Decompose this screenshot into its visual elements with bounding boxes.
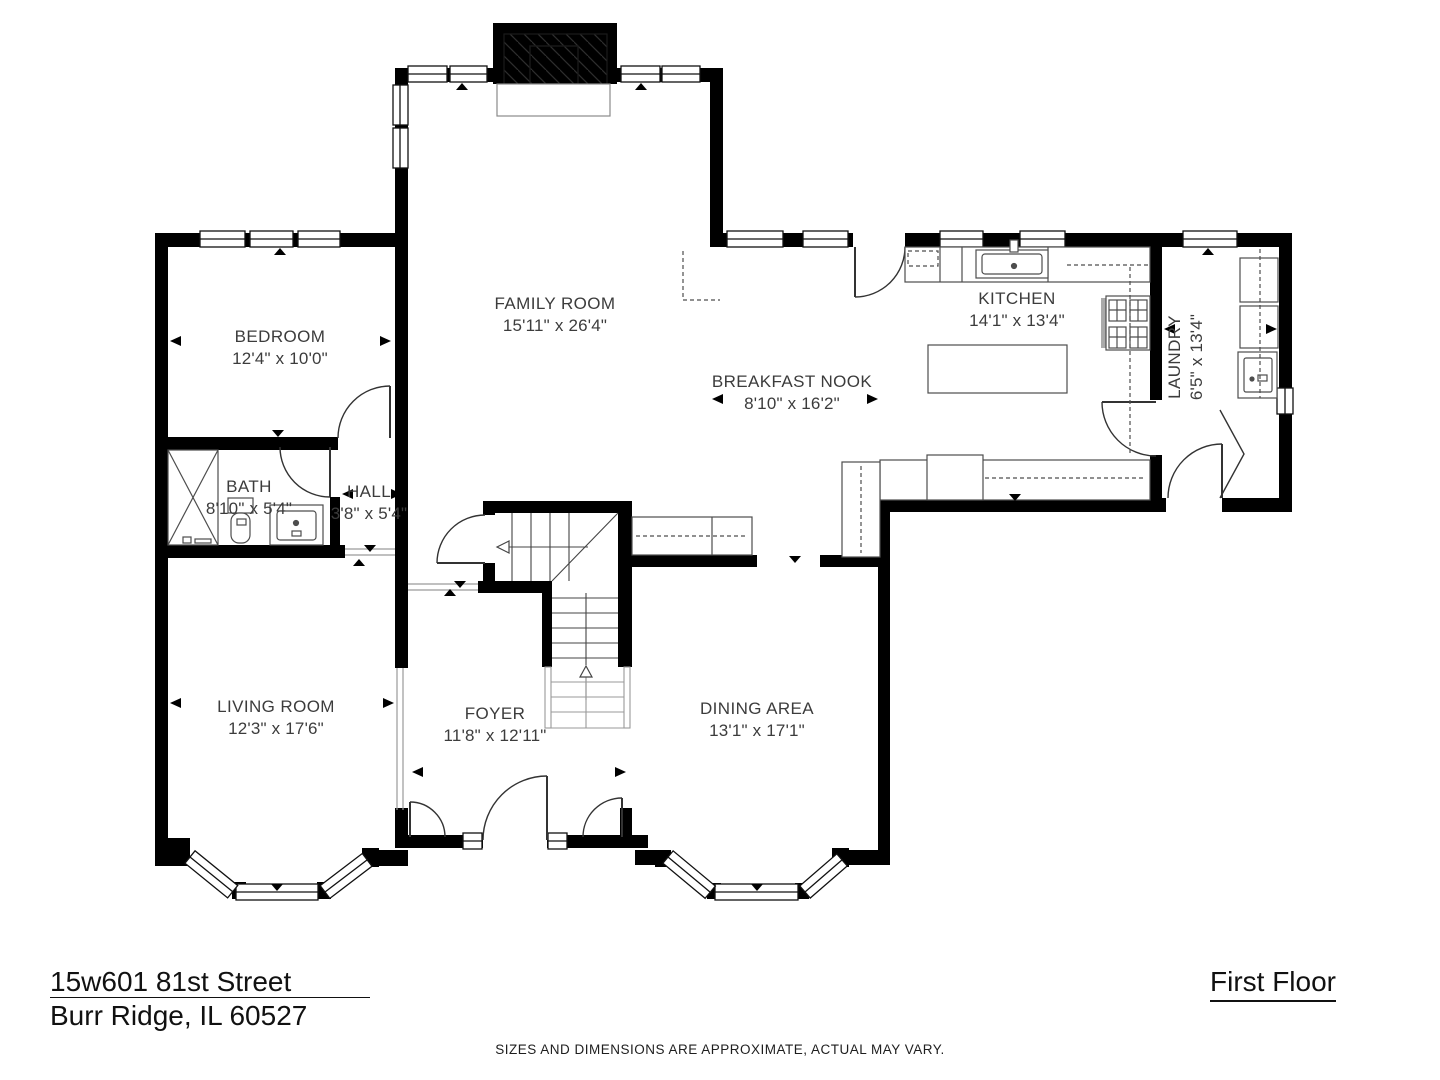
room-label-bedroom: BEDROOM12'4" x 10'0"	[232, 326, 328, 370]
washer	[1240, 258, 1278, 302]
stove	[1101, 296, 1150, 350]
room-dimensions: 8'10" x 5'4"	[206, 498, 292, 520]
floor-plan-page: FAMILY ROOM15'11" x 26'4"BREAKFAST NOOK8…	[0, 0, 1440, 1080]
room-label-hall: HALL3'8" x 5'4"	[331, 481, 408, 525]
foyer-right-closet-door	[583, 798, 622, 837]
bedroom-door	[338, 386, 390, 438]
kitchen-back-door	[855, 247, 905, 297]
room-dimensions: 8'10" x 16'2"	[712, 393, 872, 415]
living-room-bay-windows	[185, 851, 372, 900]
passage-thresholds	[345, 549, 478, 810]
room-dimensions: 15'11" x 26'4"	[495, 315, 616, 337]
staircase	[497, 513, 630, 728]
room-dimensions: 14'1" x 13'4"	[969, 310, 1065, 332]
address-underline	[50, 997, 370, 998]
floor-title: First Floor	[1210, 966, 1336, 1002]
wall-openings	[338, 232, 1222, 849]
fireplace	[497, 34, 610, 116]
room-label-bath: BATH8'10" x 5'4"	[206, 476, 292, 520]
room-name: KITCHEN	[969, 288, 1065, 310]
room-label-foyer: FOYER11'8" x 12'11"	[444, 703, 547, 747]
kitchen-laundry-door	[1102, 402, 1156, 456]
dining-bay-windows	[663, 851, 847, 900]
room-label-dining-area: DINING AREA13'1" x 17'1"	[700, 698, 814, 742]
kitchen-island	[928, 345, 1067, 393]
laundry-sink	[1238, 352, 1277, 398]
room-name: FAMILY ROOM	[495, 293, 616, 315]
room-dimensions: 3'8" x 5'4"	[331, 503, 408, 525]
room-label-kitchen: KITCHEN14'1" x 13'4"	[969, 288, 1065, 332]
doors	[280, 247, 1244, 840]
room-dimensions: 6'5" x 13'4"	[1186, 314, 1208, 400]
laundry-fixtures	[1238, 249, 1278, 398]
address-block: 15w601 81st Street	[50, 966, 291, 998]
room-dimensions: 12'4" x 10'0"	[232, 348, 328, 370]
room-name: LIVING ROOM	[217, 696, 335, 718]
disclaimer-text: SIZES AND DIMENSIONS ARE APPROXIMATE, AC…	[0, 1042, 1440, 1057]
laundry-exterior-door	[1168, 444, 1222, 498]
address-line2: Burr Ridge, IL 60527	[50, 1000, 307, 1032]
front-door	[483, 776, 547, 840]
room-label-laundry: LAUNDRY6'5" x 13'4"	[1164, 314, 1208, 400]
room-label-breakfast-nook: BREAKFAST NOOK8'10" x 16'2"	[712, 371, 872, 415]
room-dimensions: 11'8" x 12'11"	[444, 725, 547, 747]
bedroom-windows	[200, 231, 340, 247]
room-name: LAUNDRY	[1164, 314, 1186, 400]
room-name: FOYER	[444, 703, 547, 725]
room-label-family-room: FAMILY ROOM15'11" x 26'4"	[495, 293, 616, 337]
room-name: HALL	[331, 481, 408, 503]
room-dimensions: 12'3" x 17'6"	[217, 718, 335, 740]
room-name: BATH	[206, 476, 292, 498]
room-name: BEDROOM	[232, 326, 328, 348]
stair-closet-door	[437, 515, 485, 563]
room-label-living-room: LIVING ROOM12'3" x 17'6"	[217, 696, 335, 740]
address-line1: 15w601 81st Street	[50, 966, 291, 998]
laundry-bifold-closet-door	[1220, 410, 1244, 498]
foyer-left-closet-door	[410, 802, 445, 837]
room-dimensions: 13'1" x 17'1"	[700, 720, 814, 742]
room-name: DINING AREA	[700, 698, 814, 720]
room-name: BREAKFAST NOOK	[712, 371, 872, 393]
floor-plan-drawing	[0, 0, 1440, 1080]
